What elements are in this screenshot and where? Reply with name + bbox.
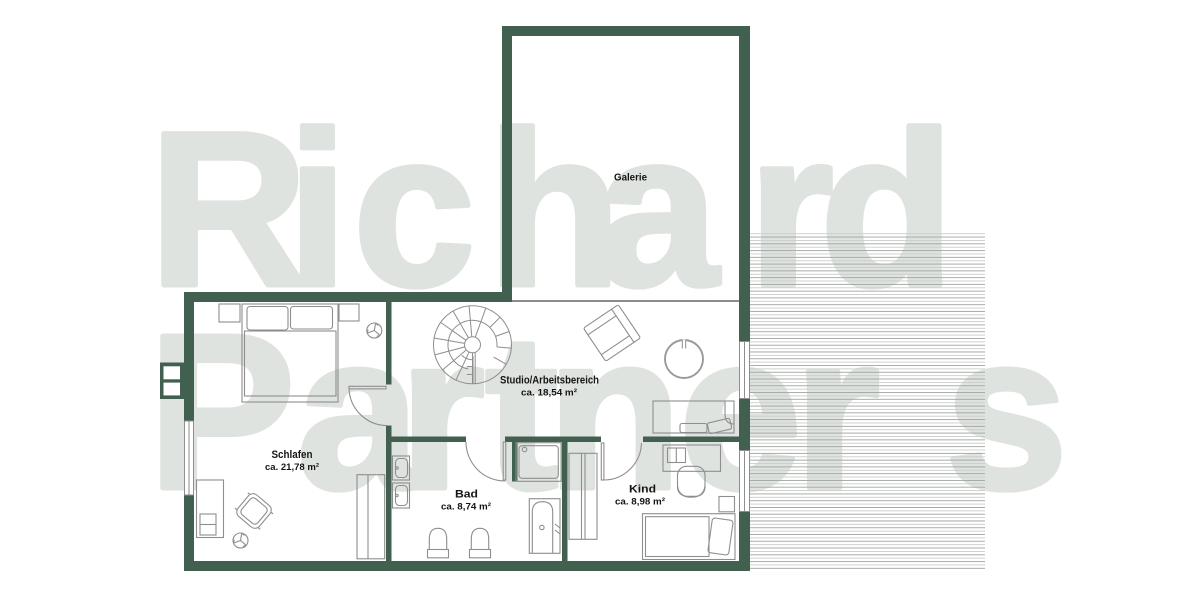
svg-text:Kind: Kind xyxy=(629,483,656,495)
svg-text:Bad: Bad xyxy=(455,488,478,500)
svg-text:Galerie: Galerie xyxy=(614,173,647,184)
svg-text:ca. 21,78 m²: ca. 21,78 m² xyxy=(265,462,319,472)
svg-text:ca. 8,98 m²: ca. 8,98 m² xyxy=(615,496,665,506)
svg-text:ca. 8,74 m²: ca. 8,74 m² xyxy=(441,501,491,511)
svg-text:Studio/Arbeitsbereich: Studio/Arbeitsbereich xyxy=(500,375,599,387)
svg-text:ca. 18,54 m²: ca. 18,54 m² xyxy=(521,388,577,398)
svg-text:Schlafen: Schlafen xyxy=(272,449,313,461)
